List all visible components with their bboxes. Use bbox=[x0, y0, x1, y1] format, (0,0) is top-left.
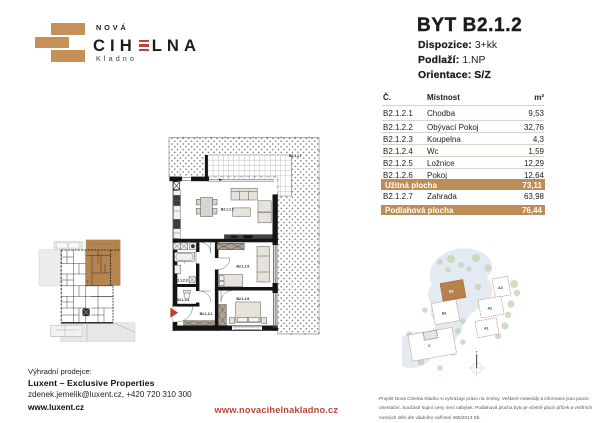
svg-text:B2.1.2.5: B2.1.2.5 bbox=[237, 264, 250, 268]
svg-text:B2.1.2.1: B2.1.2.1 bbox=[200, 312, 213, 316]
svg-text:B2.1.2.3: B2.1.2.3 bbox=[175, 278, 188, 282]
svg-text:B2.1.2.4: B2.1.2.4 bbox=[177, 298, 190, 302]
svg-text:C: C bbox=[428, 344, 431, 348]
svg-text:B2.1.2.2: B2.1.2.2 bbox=[221, 208, 234, 212]
svg-text:A3: A3 bbox=[498, 286, 503, 290]
svg-text:B2.1.2.6: B2.1.2.6 bbox=[237, 297, 250, 301]
svg-text:B2.1.2.7: B2.1.2.7 bbox=[289, 154, 302, 158]
svg-text:B1: B1 bbox=[442, 312, 447, 316]
svg-text:A2: A2 bbox=[488, 307, 493, 311]
svg-text:A1: A1 bbox=[484, 327, 489, 331]
svg-text:B2: B2 bbox=[449, 290, 454, 294]
